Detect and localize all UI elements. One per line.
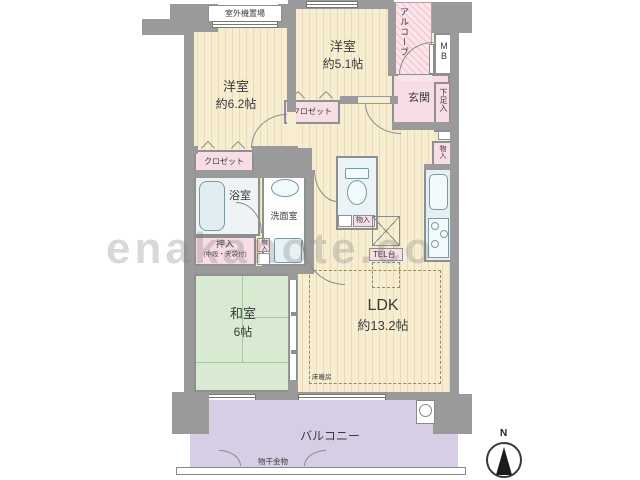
wall-alcove-left xyxy=(388,2,396,76)
stove-burner-2 xyxy=(440,230,448,238)
shoe-storage-label: 下足入 xyxy=(438,88,449,112)
window-bedroom2-top xyxy=(306,1,358,8)
meter-box-label: MB xyxy=(439,41,449,61)
closet-bedroom2-label: クロゼット xyxy=(292,107,332,116)
bathroom-label: 浴室 xyxy=(229,190,251,203)
sliding-door-tick-2 xyxy=(291,350,296,354)
front-door-opening xyxy=(398,75,432,81)
washitsu-label: 和室 xyxy=(230,307,256,322)
outdoor-unit-label: 室外機置場 xyxy=(225,9,265,18)
wall-kitchen-top xyxy=(424,164,452,170)
front-door-leaf xyxy=(429,44,434,74)
tatami-line-h1 xyxy=(196,362,288,363)
watermark-text: enakanote.co xyxy=(106,224,435,274)
ldk-size-label: 約13.2帖 xyxy=(357,319,408,334)
alcove-label: アルコーブ xyxy=(398,7,411,57)
wall-right xyxy=(450,31,459,398)
sliding-door-tick-1 xyxy=(291,312,296,316)
toilet-tank xyxy=(345,168,369,179)
wall-mid-top xyxy=(184,170,312,178)
entrance-label: 玄関 xyxy=(408,92,430,105)
balcony-label: バルコニー xyxy=(300,430,360,444)
wall-left xyxy=(184,26,194,398)
bedroom1-size-label: 約6.2帖 xyxy=(216,98,257,112)
balcony-sink-drain xyxy=(419,404,432,417)
pillar-bottom-left-2 xyxy=(172,392,209,434)
wall-genkan-bottom xyxy=(392,122,452,130)
wall-bedroom1-bottom-left xyxy=(184,146,198,154)
window-bedroom1-top xyxy=(212,21,278,28)
laundry-fitting-label: 物干金物 xyxy=(258,458,288,467)
floor-heating-label: 床暖房 xyxy=(312,374,332,381)
wall-top-left-step xyxy=(142,19,188,35)
washbasin xyxy=(271,179,299,197)
toilet-bowl xyxy=(347,180,367,205)
bedroom2-label: 洋室 xyxy=(330,40,356,55)
kitchen-sink xyxy=(429,174,448,210)
washitsu-size-label: 6帖 xyxy=(234,326,253,340)
door-opening-bedroom1 xyxy=(287,112,296,146)
bedroom1-label: 洋室 xyxy=(223,80,249,95)
sliding-door-washitsu xyxy=(289,280,297,380)
wall-corridor-corner xyxy=(296,148,312,178)
floor-plan: アルコーブ MB 玄関 下足入 物入 クロゼット クロゼット 浴室 洗面室 物入… xyxy=(0,0,640,480)
closet-bedroom1-label: クロゼット xyxy=(204,157,244,166)
wall-top-right-block xyxy=(432,2,472,33)
bedroom2-size-label: 約5.1帖 xyxy=(323,58,364,72)
pillar-bottom-right-2 xyxy=(433,394,472,434)
washroom-label: 洗面室 xyxy=(270,211,297,221)
hall-storage-label: 物入 xyxy=(437,145,447,159)
compass-north-label: N xyxy=(500,428,507,440)
balcony-rail xyxy=(176,467,466,475)
compass-needle-icon xyxy=(496,447,512,475)
ldk-label: LDK xyxy=(367,297,398,315)
